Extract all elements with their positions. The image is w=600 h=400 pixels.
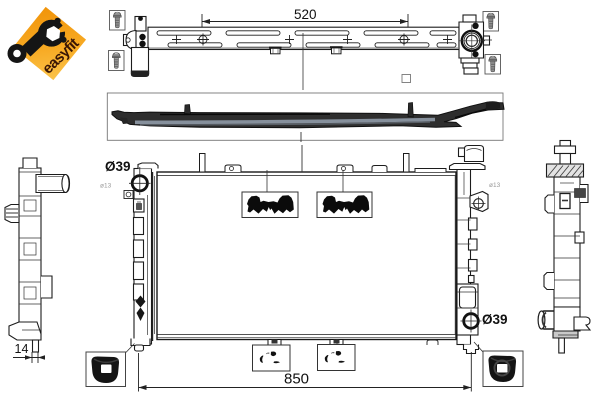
svg-text:Ø39: Ø39 xyxy=(482,312,508,327)
svg-text:Ø39: Ø39 xyxy=(105,159,131,174)
svg-text:14: 14 xyxy=(15,342,29,356)
svg-text:ø13: ø13 xyxy=(100,183,112,190)
svg-text:850: 850 xyxy=(284,371,309,388)
svg-text:ø13: ø13 xyxy=(489,182,501,189)
svg-text:520: 520 xyxy=(294,7,317,22)
